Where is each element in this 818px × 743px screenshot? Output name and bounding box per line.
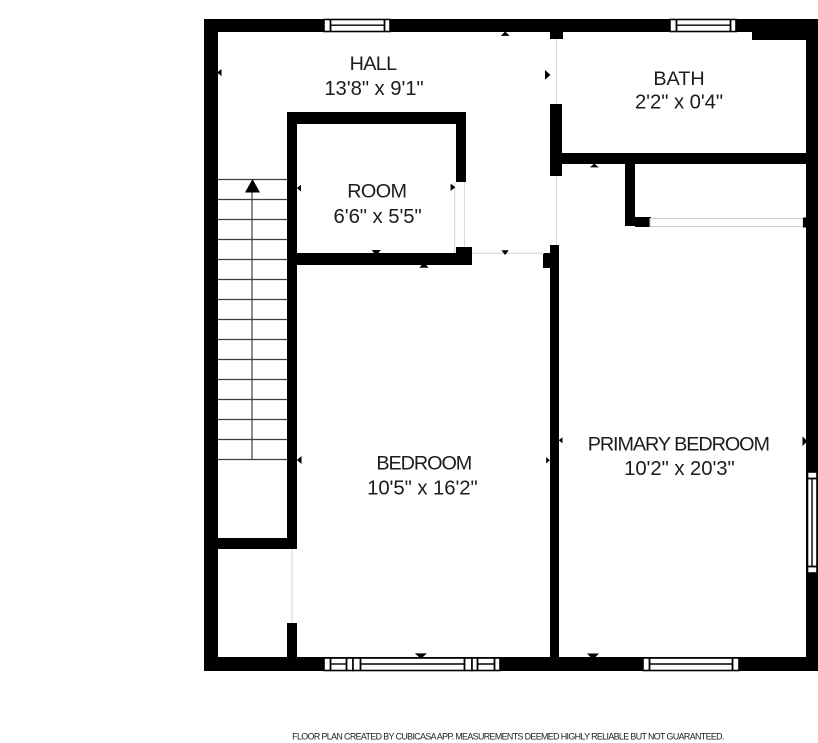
svg-text:ROOM: ROOM (347, 181, 406, 203)
svg-text:HALL: HALL (350, 53, 397, 75)
svg-text:10'2" x 20'3": 10'2" x 20'3" (624, 458, 735, 480)
svg-text:6'6" x 5'5": 6'6" x 5'5" (334, 206, 422, 228)
svg-text:2'2" x 0'4": 2'2" x 0'4" (635, 92, 723, 114)
svg-text:BATH: BATH (653, 68, 704, 90)
svg-text:PRIMARY BEDROOM: PRIMARY BEDROOM (588, 434, 769, 456)
svg-text:BEDROOM: BEDROOM (376, 453, 471, 475)
svg-text:FLOOR PLAN CREATED BY CUBICASA: FLOOR PLAN CREATED BY CUBICASA APP. MEAS… (292, 731, 724, 741)
svg-text:10'5" x 16'2": 10'5" x 16'2" (367, 478, 478, 500)
svg-text:13'8" x 9'1": 13'8" x 9'1" (324, 78, 423, 100)
